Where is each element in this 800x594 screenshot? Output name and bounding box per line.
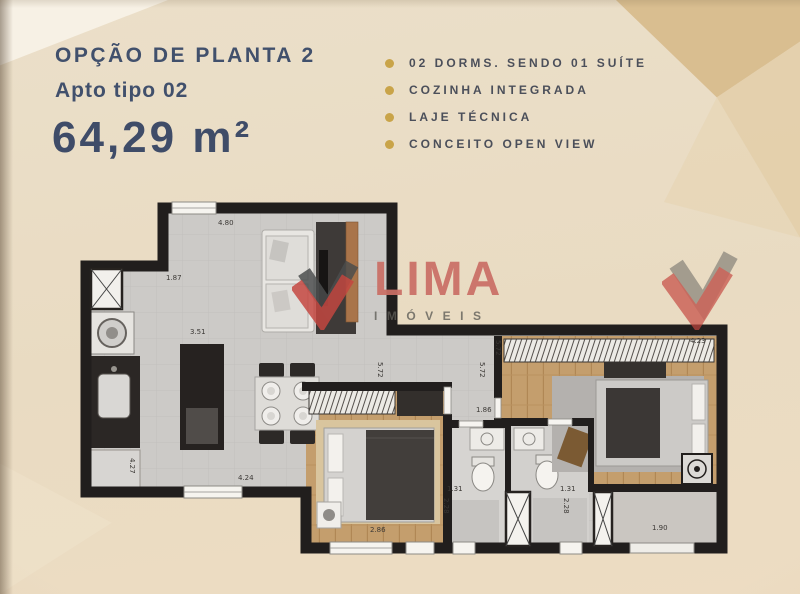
- window-sill: [560, 542, 582, 554]
- floor-plan: [0, 0, 800, 594]
- sink-icon: [98, 374, 130, 418]
- dining-chair: [290, 363, 315, 377]
- shower-box: [449, 500, 499, 544]
- faucet-icon: [111, 366, 117, 372]
- bedroom2-laje-hatch: [309, 390, 395, 414]
- window-sill: [630, 543, 694, 553]
- closet-floor: [612, 492, 722, 548]
- dining-chair: [259, 363, 284, 377]
- suite-wardrobe: [604, 362, 666, 378]
- shower-box: [533, 498, 587, 544]
- dining-chair: [259, 430, 284, 444]
- suite-laje-hatch: [504, 339, 714, 362]
- door-leaf: [495, 398, 501, 418]
- flyer-page: OPÇÃO DE PLANTA 2 Apto tipo 02 64,29 m² …: [0, 0, 800, 594]
- fridge-icon: [90, 450, 140, 488]
- vanity: [470, 428, 504, 450]
- door-leaf: [459, 421, 483, 427]
- toilet-icon: [472, 463, 494, 491]
- entry-door: [346, 222, 358, 322]
- window-sill: [453, 542, 475, 554]
- door-leaf: [548, 419, 572, 425]
- window-sill: [406, 542, 434, 554]
- vanity: [514, 428, 544, 450]
- bedroom-2: [309, 390, 443, 528]
- dining-chair: [290, 430, 315, 444]
- door-leaf: [444, 387, 451, 414]
- bedroom2-wardrobe: [397, 390, 443, 416]
- tv-icon: [319, 250, 328, 306]
